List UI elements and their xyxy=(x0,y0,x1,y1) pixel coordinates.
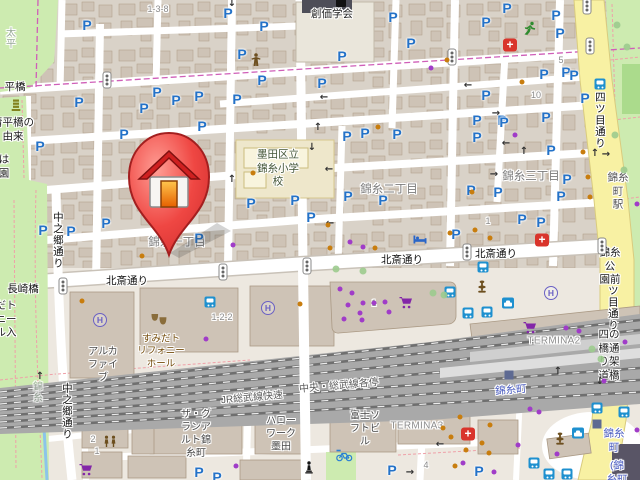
doto-icon xyxy=(488,236,493,241)
arrow-icon: → xyxy=(490,170,498,180)
fujisoft-bldg-label: 富士ソ フトビ ル xyxy=(350,410,380,449)
bus-icon xyxy=(529,458,540,469)
parking-icon: P xyxy=(257,73,266,87)
hello-work-sumida-label: ハロー ワーク 墨田 xyxy=(266,415,296,454)
parking-icon: P xyxy=(555,26,564,40)
runner-icon xyxy=(523,22,537,41)
doto-icon xyxy=(326,223,331,228)
subway-icon xyxy=(505,371,514,380)
cart-icon xyxy=(399,296,414,314)
arrow-icon: ↑ xyxy=(591,149,599,159)
arrow-icon: ← xyxy=(325,165,333,175)
parking-icon: P xyxy=(536,215,545,229)
nagasaki-bridge-label: 長崎橋 xyxy=(7,283,39,297)
dotp-icon xyxy=(492,470,497,475)
taihei-label: 太平 xyxy=(3,27,16,49)
tree-icon xyxy=(430,290,437,297)
bus-icon xyxy=(482,307,493,318)
worship-icon xyxy=(336,0,346,7)
parking-icon: P xyxy=(171,93,180,107)
parking-icon: P xyxy=(194,465,203,479)
signal-icon xyxy=(586,38,595,55)
parking-icon: P xyxy=(546,143,555,157)
tree-icon xyxy=(333,266,340,273)
parking-icon: P xyxy=(541,110,550,124)
doto-icon xyxy=(588,195,593,200)
dotp-icon xyxy=(360,318,365,323)
parking-icon: P xyxy=(38,223,47,237)
bus-icon xyxy=(592,403,603,414)
dotp-icon xyxy=(383,300,388,305)
hokusai-street-label: 北斎通り xyxy=(381,254,423,268)
dotp-icon xyxy=(537,410,542,415)
bus-icon xyxy=(595,79,606,90)
dotp-icon xyxy=(635,428,640,433)
nakanogo-street-label: 中之郷通り xyxy=(50,211,64,269)
kinshicho-label: (錦糸町 xyxy=(606,459,629,480)
tree-icon xyxy=(589,346,596,353)
masks-icon xyxy=(151,313,168,331)
parking-icon: P xyxy=(237,47,246,61)
doto-icon xyxy=(448,231,453,236)
parking-icon: P xyxy=(378,193,387,207)
clipped-text: は 園 xyxy=(0,153,9,180)
dotp-icon xyxy=(577,329,582,334)
doto-icon xyxy=(458,415,463,420)
arrow-icon: ← xyxy=(502,139,510,149)
parking-icon: P xyxy=(212,470,221,480)
jr-sobu-rapid-label: JR総武線快速 xyxy=(220,389,283,407)
arrow-icon: ↓ xyxy=(308,143,316,153)
dotp-icon xyxy=(623,340,628,345)
doto-icon xyxy=(441,426,446,431)
arrow-icon: → xyxy=(492,109,500,119)
hokusai-street-label: 北斎通り xyxy=(106,275,148,289)
block-number: 1 xyxy=(485,216,490,228)
parking-icon: P xyxy=(493,185,502,199)
statue-icon xyxy=(304,461,314,479)
nakanogo-street-label: 中之郷通り xyxy=(59,382,73,440)
arrow-icon: → xyxy=(602,150,610,160)
parking-icon: P xyxy=(387,463,396,477)
subway-icon xyxy=(593,420,602,429)
tree-icon xyxy=(621,167,628,174)
tree-icon xyxy=(624,44,631,51)
doto-icon xyxy=(453,464,458,469)
doto-icon xyxy=(445,58,450,63)
parking-icon: P xyxy=(342,129,351,143)
signal-icon xyxy=(303,258,312,275)
parking-icon: P xyxy=(388,10,397,24)
signal-icon xyxy=(583,0,592,15)
dotp-icon xyxy=(516,443,521,448)
block-address: 1-3-8 xyxy=(147,4,168,16)
dotp-icon xyxy=(342,317,347,322)
map-canvas[interactable]: 1-3-8創価学会太平平橋清平橋の 由来は 園墨田区立 錦糸小学 校錦糸二丁目錦… xyxy=(0,0,640,480)
doto-icon xyxy=(80,299,85,304)
block-number: 10 xyxy=(531,90,541,102)
doto-icon xyxy=(373,246,378,251)
statueb-icon xyxy=(250,53,263,71)
doto-icon xyxy=(487,451,492,456)
parking-icon: P xyxy=(139,101,148,115)
parking-icon: P xyxy=(472,113,481,127)
tree-icon xyxy=(614,22,621,29)
parking-icon: P xyxy=(317,76,326,90)
bed-icon xyxy=(413,232,428,250)
arrow-icon: ↑ xyxy=(520,147,528,157)
signal-icon xyxy=(59,278,68,295)
signal-icon xyxy=(598,238,607,255)
bus-icon xyxy=(478,262,489,273)
arca-five-label: アルカ ファイ ブ xyxy=(88,346,118,385)
kinshi-3chome-label: 錦糸三丁目 xyxy=(502,170,560,185)
cart-icon xyxy=(523,321,538,339)
kinshicho-label: 錦糸町 xyxy=(601,427,627,454)
dotp-icon xyxy=(358,311,363,316)
doto-icon xyxy=(376,125,381,130)
playground-icon xyxy=(102,435,119,453)
monument-label: 清平橋の 由来 xyxy=(0,116,34,143)
taxi-icon xyxy=(502,298,514,309)
doto-icon xyxy=(470,190,475,195)
parking-icon: P xyxy=(562,172,571,186)
parking-icon: P xyxy=(392,127,401,141)
parking-icon: P xyxy=(539,67,548,81)
parking-icon: P xyxy=(481,88,490,102)
dotp-icon xyxy=(234,464,239,469)
bus-icon xyxy=(619,407,630,418)
arrow-icon: ↑ xyxy=(314,123,322,133)
tree-icon xyxy=(441,292,448,299)
parking-icon: P xyxy=(551,8,560,22)
dotp-icon xyxy=(387,310,392,315)
parking-icon: P xyxy=(406,36,415,50)
fountain-icon xyxy=(476,280,488,298)
bus-icon xyxy=(544,469,555,480)
tree-icon xyxy=(612,132,619,139)
helipad-icon: H xyxy=(544,286,558,300)
dotp-icon xyxy=(555,452,560,457)
dotp-icon xyxy=(348,240,353,245)
fountain-icon xyxy=(554,432,566,450)
parking-icon: P xyxy=(259,19,268,33)
block-number: 4 xyxy=(423,460,428,472)
helipad-icon: H xyxy=(93,313,107,327)
doto-icon xyxy=(480,441,485,446)
dotp-icon xyxy=(461,461,466,466)
dotp-icon xyxy=(528,407,533,412)
parking-icon: P xyxy=(246,196,255,210)
yotsume-street-label: 四ツ目通り xyxy=(592,91,606,149)
tree-icon xyxy=(360,268,367,275)
block-number: 1 xyxy=(94,446,99,458)
arrow-icon: → xyxy=(406,468,414,478)
parking-icon: P xyxy=(451,227,460,241)
bridge-label: 平橋 xyxy=(5,81,26,95)
soka-gakkai-label: 創価学会 xyxy=(311,8,353,22)
dotp-icon xyxy=(204,337,209,342)
parking-icon: P xyxy=(499,115,508,129)
parking-icon: P xyxy=(569,68,578,82)
arrow-icon: ↑ xyxy=(554,367,562,377)
taxi-icon xyxy=(572,428,584,439)
signal-icon xyxy=(463,244,472,261)
arrow-icon: ↓ xyxy=(228,0,236,9)
dotp-icon xyxy=(372,301,377,306)
dotp-icon xyxy=(602,379,607,384)
arrow-icon: ← xyxy=(436,440,444,450)
parking-icon: P xyxy=(474,464,483,478)
doto-icon xyxy=(464,448,469,453)
parking-icon: P xyxy=(580,91,589,105)
bus-icon xyxy=(463,308,474,319)
hokusai-street-label: 北斎通り xyxy=(475,248,517,262)
doto-icon xyxy=(473,228,478,233)
parking-icon: P xyxy=(194,89,203,103)
kinshicho-station-label: 錦糸町 駅 xyxy=(607,172,629,213)
area-label: 錦糸 xyxy=(30,381,43,403)
signal-icon xyxy=(219,264,228,281)
dotp-icon xyxy=(513,133,518,138)
parking-icon: P xyxy=(517,212,526,226)
parking-icon: P xyxy=(66,224,75,238)
sumida-kinshi-elementary-label: 墨田区立 錦糸小学 校 xyxy=(257,149,299,190)
parking-icon: P xyxy=(82,18,91,32)
parking-icon: P xyxy=(502,1,511,15)
bus-icon xyxy=(205,297,216,308)
doto-icon xyxy=(488,423,493,428)
block-number: 2 xyxy=(90,434,95,446)
parking-icon: P xyxy=(232,92,241,106)
triphony-hall-label: すみだト リフォニー ホール xyxy=(137,333,185,370)
cart-icon xyxy=(79,463,94,480)
cross-icon: + xyxy=(535,234,549,247)
cross-icon: + xyxy=(503,39,517,52)
parking-icon: P xyxy=(472,130,481,144)
doto-icon xyxy=(581,150,586,155)
arrow-icon: ← xyxy=(320,93,328,103)
arrow-icon: ← xyxy=(464,81,472,91)
block-address: 1-2-2 xyxy=(211,312,232,324)
parking-icon: P xyxy=(35,139,44,153)
doto-icon xyxy=(251,171,256,176)
arrow-icon: ↑ xyxy=(36,372,44,382)
parking-icon: P xyxy=(343,189,352,203)
grand-alto-label: ザ・グ ランア ルト錦 糸町 xyxy=(181,408,211,460)
parking-icon: P xyxy=(360,126,369,140)
dotp-icon xyxy=(429,66,434,71)
dotp-icon xyxy=(361,301,366,306)
signal-icon xyxy=(103,72,112,89)
parking-icon: P xyxy=(337,49,346,63)
chuo-sobu-local-label: 中央・総武線各停 xyxy=(299,376,380,396)
signal-icon xyxy=(448,49,457,66)
helipad-icon: H xyxy=(261,301,275,315)
doto-icon xyxy=(298,302,303,307)
location-marker[interactable] xyxy=(117,125,247,261)
doto-icon xyxy=(586,175,591,180)
dotp-icon xyxy=(338,287,343,292)
doto-icon xyxy=(449,435,454,440)
doto-icon xyxy=(328,246,333,251)
dotp-icon xyxy=(564,326,569,331)
cross-icon: + xyxy=(461,428,475,441)
parking-icon: P xyxy=(306,210,315,224)
dotp-icon xyxy=(361,245,366,250)
dotp-icon xyxy=(635,202,640,207)
parking-icon: P xyxy=(290,193,299,207)
doto-icon xyxy=(520,80,525,85)
bus-icon xyxy=(562,469,573,480)
parking-icon: P xyxy=(101,216,110,230)
kinshicho-rail-label: 錦糸町 xyxy=(495,383,528,399)
parking-icon: P xyxy=(152,85,161,99)
clipped-text: だト ニー ル入 xyxy=(0,300,17,341)
dotp-icon xyxy=(346,303,351,308)
bicycle-icon xyxy=(335,449,353,467)
monument-icon xyxy=(11,99,22,117)
tree-icon xyxy=(598,356,605,363)
parking-icon: P xyxy=(556,189,565,203)
kinshi-2chome-label: 錦糸二丁目 xyxy=(360,183,418,198)
map-overlay: 1-3-8創価学会太平平橋清平橋の 由来は 園墨田区立 錦糸小学 校錦糸二丁目錦… xyxy=(0,0,640,480)
parking-icon: P xyxy=(74,95,83,109)
termina3-label: TERMINA3 xyxy=(391,420,444,433)
parking-icon: P xyxy=(481,15,490,29)
dotp-icon xyxy=(350,291,355,296)
